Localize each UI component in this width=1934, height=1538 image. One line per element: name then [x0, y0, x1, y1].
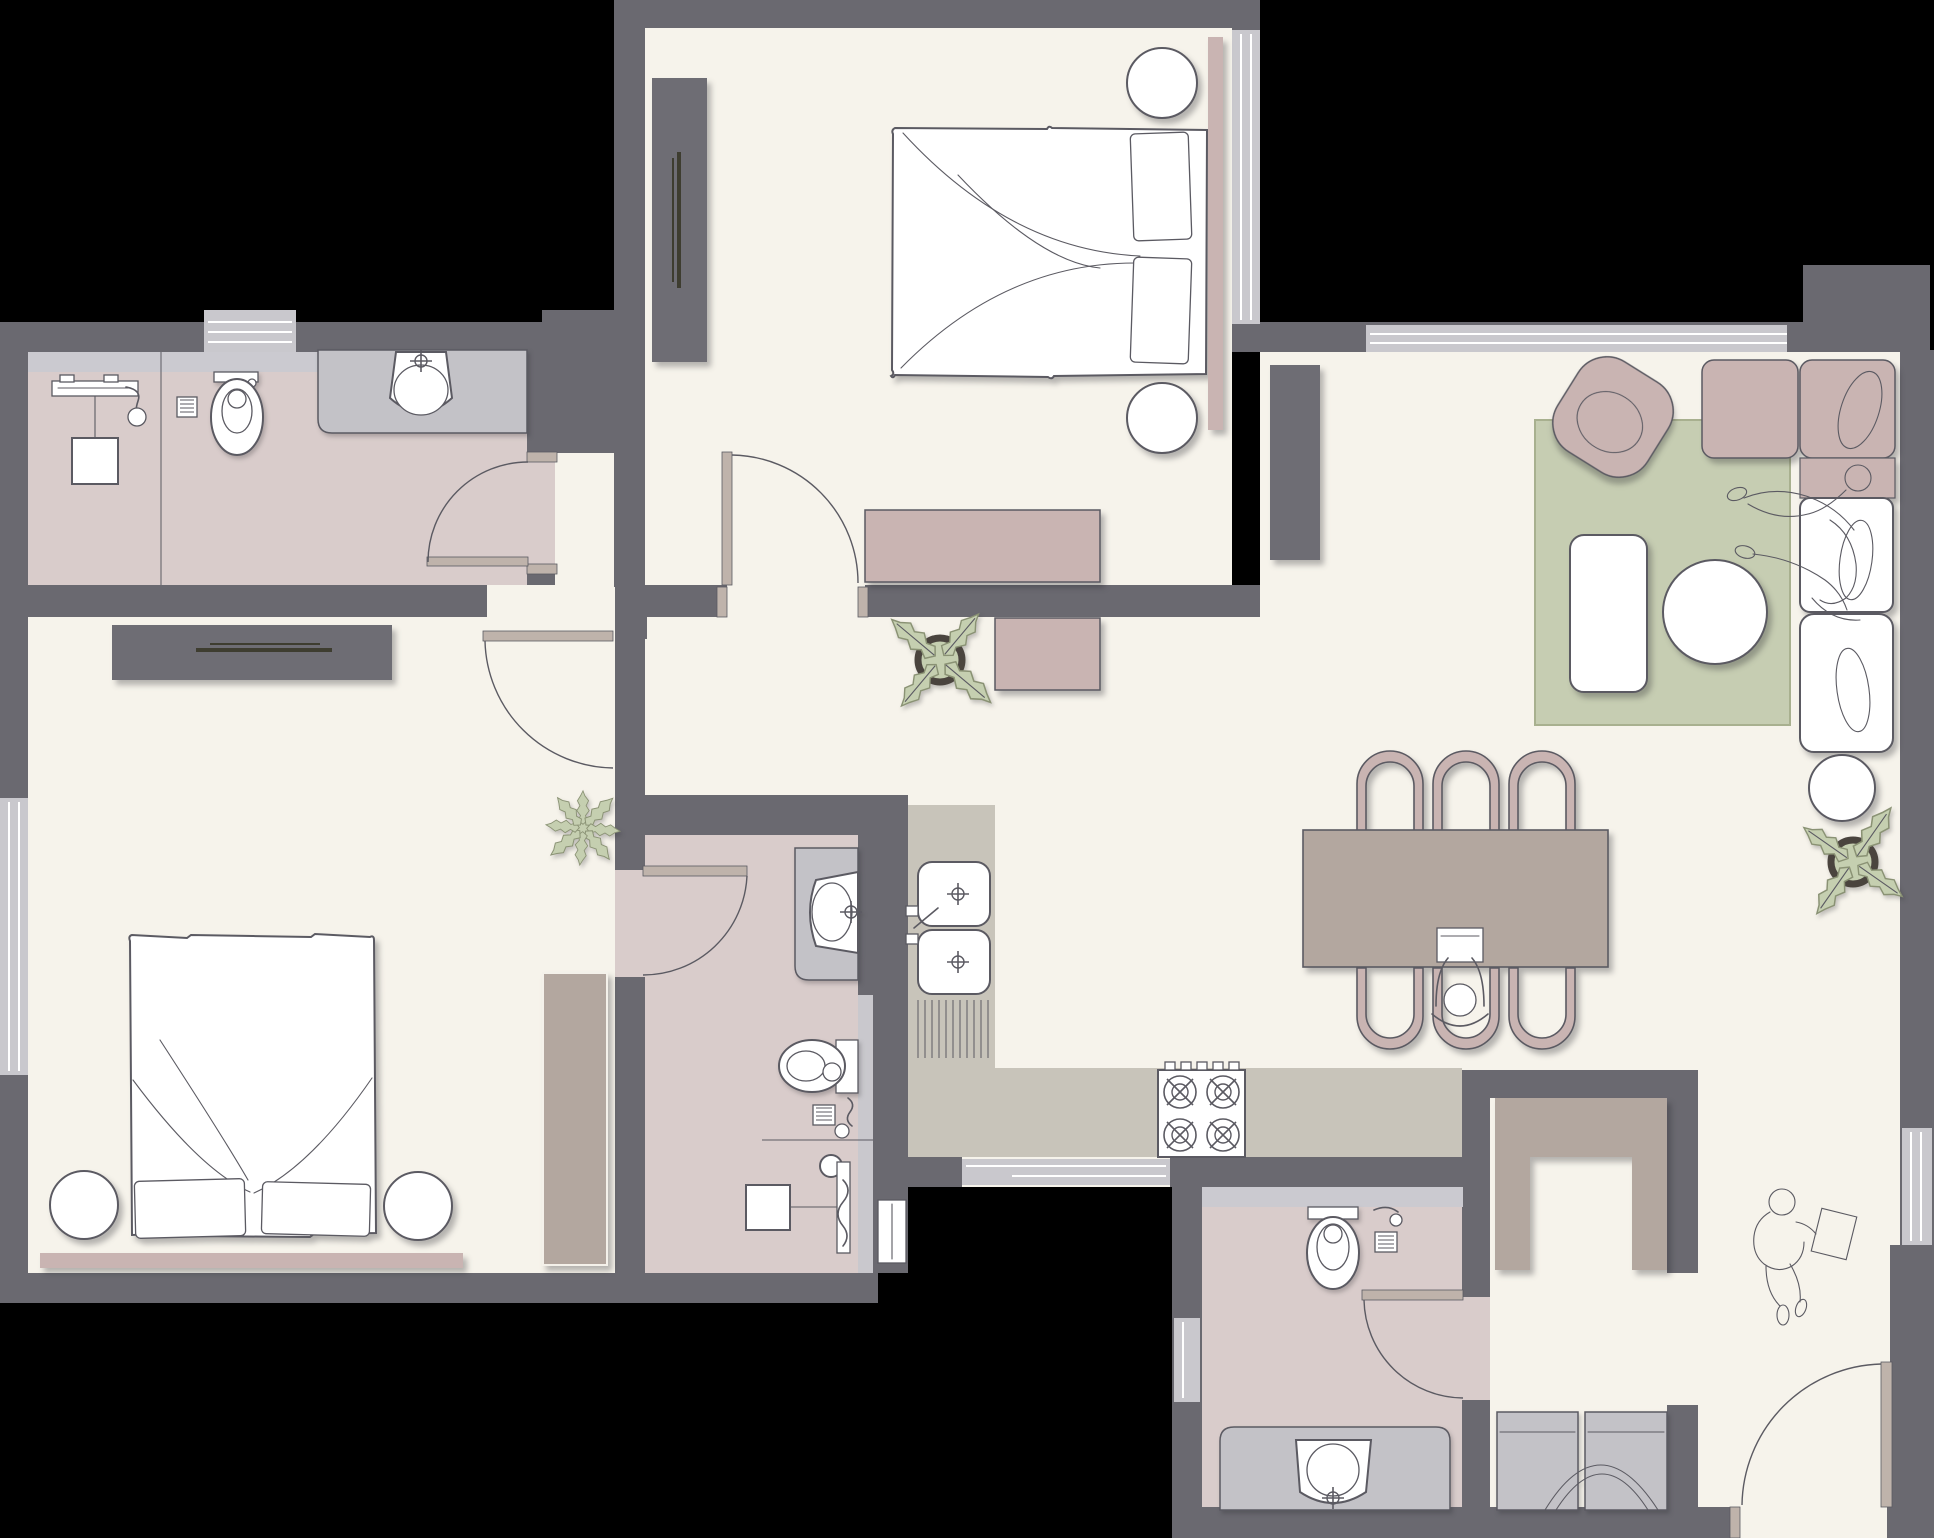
wall-bathroom2-north	[645, 795, 908, 835]
vanity-sink	[318, 350, 527, 433]
toilet	[1307, 1207, 1359, 1289]
master-bedroom-window	[1232, 30, 1260, 324]
sofa-section	[1800, 458, 1895, 498]
side-table	[1809, 755, 1875, 821]
door-leaf	[643, 866, 747, 876]
bathroom3-ledge	[1202, 1187, 1463, 1207]
wall-corner-block-ne	[1803, 265, 1930, 352]
wall-kitchen-south-a	[908, 1157, 962, 1187]
shower-head-plate	[72, 438, 118, 484]
bathroom1-ledge	[28, 352, 318, 372]
coffee-table	[1570, 535, 1647, 692]
floor-drain	[813, 1105, 835, 1125]
pillow	[1130, 257, 1192, 364]
tv-console	[112, 625, 392, 680]
wardrobe	[652, 78, 707, 362]
floor-drain	[177, 397, 197, 417]
floor-plan-stage	[0, 0, 1934, 1538]
wall-bedroom2-east-lower	[615, 977, 645, 1273]
kitchen-window	[962, 1159, 1170, 1185]
round-pouf	[1127, 48, 1197, 118]
wall-kitchen-south-b	[1170, 1157, 1490, 1187]
wall-south-band-west	[0, 585, 487, 617]
wall-south-exterior-west	[0, 1273, 878, 1303]
master-door-threshold	[727, 585, 858, 619]
bathroom1-window	[204, 310, 296, 352]
shower-plate	[746, 1185, 790, 1230]
sofa-seat	[1800, 498, 1893, 612]
wall-between-doors	[615, 585, 727, 617]
wall-hung-toilet	[779, 1040, 858, 1093]
door-leaf	[1881, 1362, 1892, 1507]
bathroom1-nook-floor	[555, 453, 615, 587]
window-mullion	[1787, 322, 1803, 352]
tall-cabinet	[1270, 365, 1320, 560]
wall-south-corner	[1887, 1507, 1934, 1538]
living-room-window	[1366, 322, 1803, 352]
vanity-sink	[795, 848, 862, 980]
door-leaf	[722, 452, 732, 585]
sofa-seat	[1800, 614, 1893, 752]
pillow	[261, 1182, 370, 1237]
vanity-sink	[1220, 1427, 1450, 1510]
bathroom3-door-threshold	[1463, 1297, 1490, 1400]
door-leaf	[1362, 1290, 1463, 1300]
wall-bedroom2-east-upper	[615, 617, 645, 870]
door-leaf	[483, 631, 613, 641]
wall-south-exterior-east	[1172, 1507, 1740, 1538]
wall-bedroom2-west-lower	[0, 1075, 28, 1302]
bathroom3-window	[1174, 1318, 1200, 1402]
door-leaf	[427, 557, 528, 566]
round-pouf	[384, 1172, 452, 1240]
pillow	[1130, 132, 1192, 241]
hall-console	[995, 618, 1100, 690]
wall-bathroom3-east-upper	[1462, 1070, 1490, 1297]
wall-east-exterior	[1900, 350, 1934, 1510]
wall-bathroom2-east	[858, 835, 908, 995]
wall-dining-south	[1462, 1070, 1698, 1098]
bathroom2-door-threshold	[615, 870, 645, 977]
wall-master-south	[865, 585, 1260, 617]
wall-closet-east-upper	[1667, 1098, 1698, 1273]
wall-bedroom2-west-upper	[0, 613, 28, 798]
bathroom2-glass-screen	[858, 995, 873, 1273]
wall-bathroom1-east-upper	[527, 352, 555, 462]
tall-wardrobe	[543, 973, 607, 1265]
entry-door-threshold	[1740, 1507, 1887, 1538]
cooktop	[1158, 1062, 1245, 1157]
bed-bench	[40, 1253, 463, 1268]
floor-plan-svg	[0, 0, 1934, 1538]
round-pouf	[1127, 383, 1197, 453]
wall-master-west	[614, 28, 645, 587]
bathroom1-door-threshold	[527, 462, 555, 564]
round-table	[1663, 560, 1767, 664]
wall-bathroom1-west	[0, 322, 28, 613]
headboard	[1208, 37, 1223, 430]
wall-master-north	[614, 0, 1260, 28]
entry-window	[1902, 1128, 1932, 1245]
sideboard	[865, 510, 1100, 582]
bedroom2-window	[0, 798, 28, 1075]
shower-handset	[128, 408, 146, 426]
pillow	[134, 1179, 245, 1239]
round-pouf	[50, 1171, 118, 1239]
